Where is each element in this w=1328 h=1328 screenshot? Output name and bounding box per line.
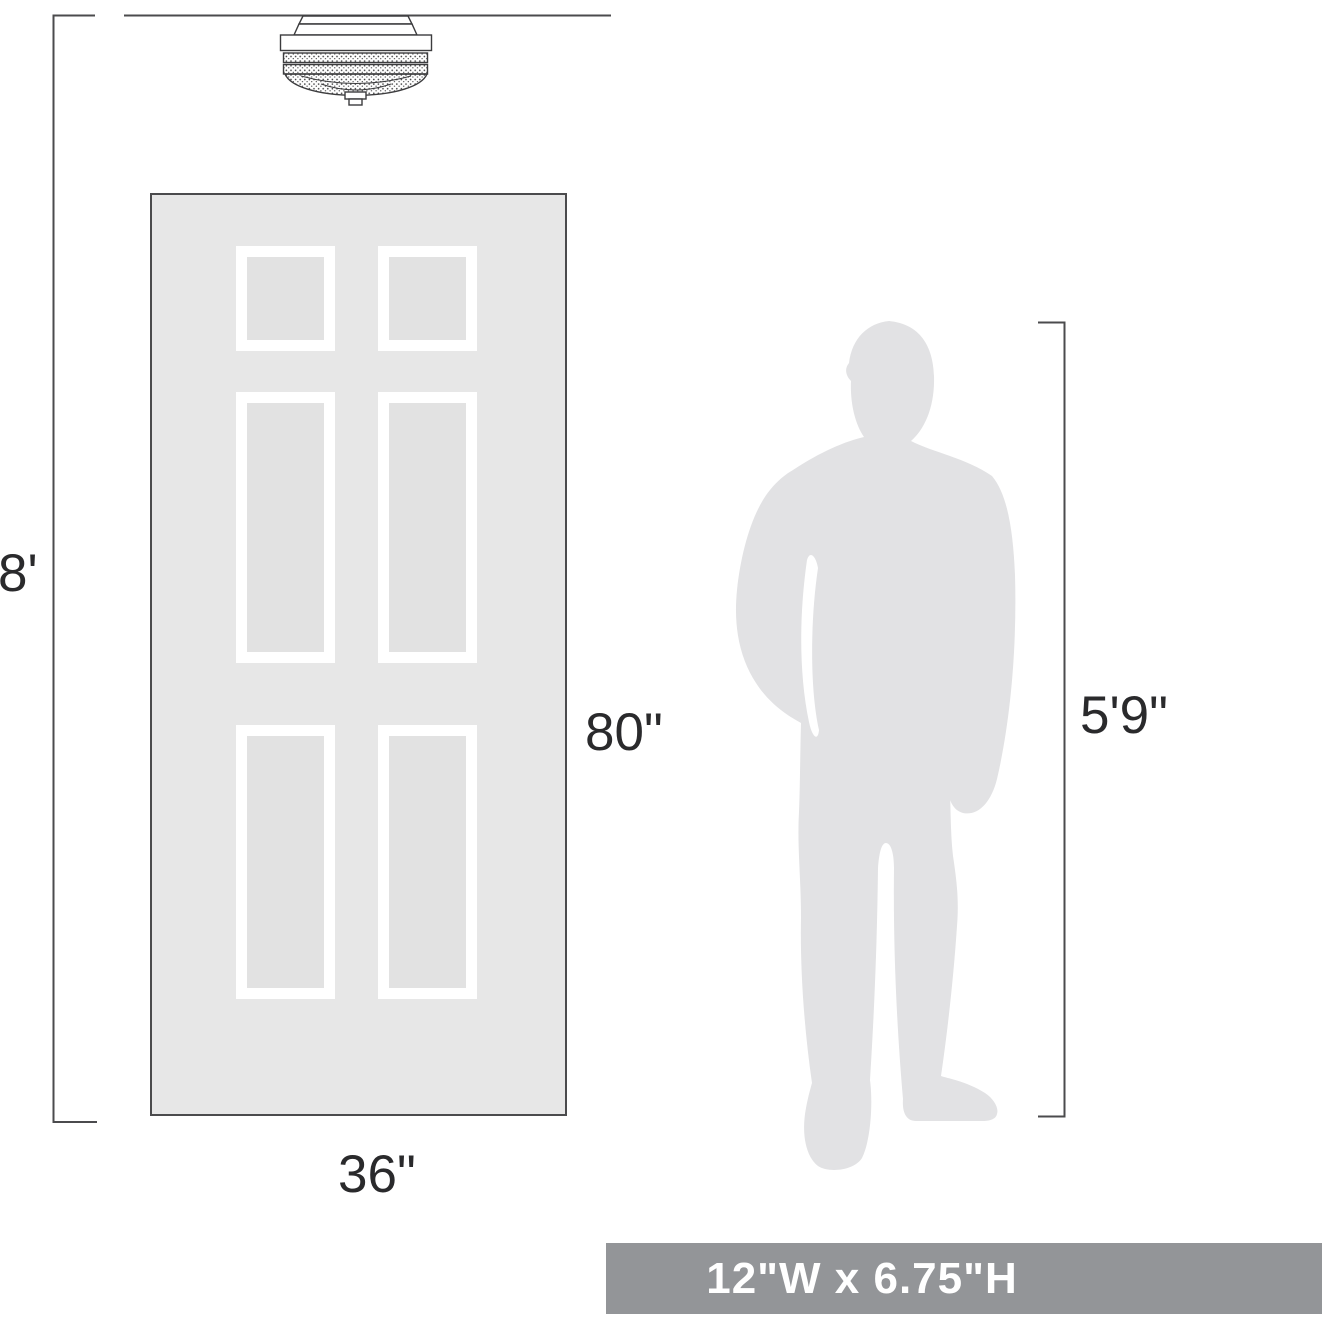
fixture-size-banner: 12"W x 6.75"H [606,1243,1322,1314]
door [151,194,566,1115]
door-height-label: 80" [585,706,663,759]
diagram-artwork [0,0,1328,1328]
size-comparison-diagram: 8' 80" 36" 5'9" 12"W x 6.75"H [0,0,1328,1328]
person-height-label: 5'9" [1080,689,1168,742]
light-fixture [281,16,432,105]
door-panel [236,246,335,351]
door-panel [378,392,477,663]
ceiling-height-bracket [54,16,98,1123]
person-silhouette [736,321,1015,1170]
ceiling-height-label: 8' [0,547,38,600]
person-height-bracket [1038,323,1065,1117]
fixture-size-text: 12"W x 6.75"H [606,1243,1118,1314]
door-panel [236,725,335,999]
door-panel [378,246,477,351]
door-panel [378,725,477,999]
door-width-label: 36" [338,1148,416,1201]
door-panel [236,392,335,663]
